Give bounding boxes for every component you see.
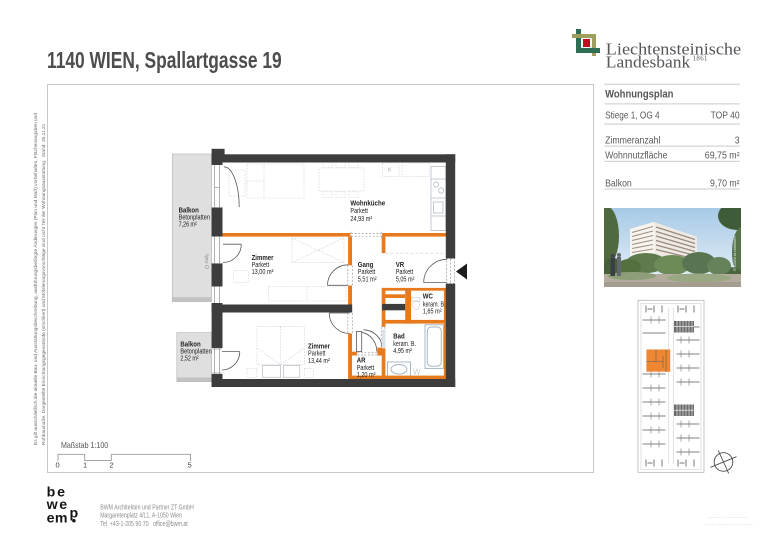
svg-text:© BWM Architekten: © BWM Architekten (732, 236, 737, 271)
svg-text:24,93 m²: 24,93 m² (350, 215, 372, 223)
svg-text:Margaretenplatz 4/L1, A-1050 W: Margaretenplatz 4/L1, A-1050 Wien (100, 512, 182, 520)
svg-text:9,70 m²: 9,70 m² (710, 178, 740, 189)
svg-text:Balkon: Balkon (605, 178, 632, 189)
svg-text:W: W (413, 368, 421, 377)
svg-text:69,75 m²: 69,75 m² (705, 150, 740, 160)
svg-text:5,05 m²: 5,05 m² (396, 276, 415, 284)
svg-text:3: 3 (735, 135, 740, 146)
svg-text:Zimmeranzahl: Zimmeranzahl (605, 135, 660, 146)
svg-text:TOP 40: TOP 40 (711, 110, 740, 121)
svg-text:p: p (70, 505, 79, 521)
svg-text:Wohnungsplan: Wohnungsplan (605, 89, 673, 101)
svg-text:2: 2 (110, 461, 114, 470)
svg-text:13,00 m²: 13,00 m² (252, 269, 274, 277)
svg-text:Landesbank: Landesbank (606, 53, 691, 72)
svg-text:BWM Architekten und Partner ZT: BWM Architekten und Partner ZT GmbH (100, 504, 194, 512)
svg-text:1140 WIEN, Spallartgasse 19: 1140 WIEN, Spallartgasse 19 (47, 49, 282, 74)
svg-text:WC: WC (423, 293, 433, 301)
svg-text:5: 5 (188, 461, 192, 470)
svg-text:Tel +43-1-205 90 70 office@: Tel +43-1-205 90 70 office@bwm.at (100, 520, 188, 528)
svg-text:1,20 m²: 1,20 m² (357, 371, 376, 379)
svg-text:K: K (388, 168, 392, 174)
svg-text:em: em (47, 510, 68, 526)
svg-text:4,95 m²: 4,95 m² (393, 347, 412, 355)
svg-text:Wohnküche: Wohnküche (350, 200, 385, 208)
svg-text:1: 1 (83, 461, 87, 470)
svg-text:Stiege 1, OG 4: Stiege 1, OG 4 (605, 110, 660, 121)
svg-text:2,52 m²: 2,52 m² (180, 355, 198, 363)
svg-text:Wohnnutzfläche: Wohnnutzfläche (605, 150, 667, 161)
svg-text:1,65 m²: 1,65 m² (423, 308, 442, 316)
svg-text:Gully: Gully (204, 253, 209, 264)
svg-text:0: 0 (56, 461, 60, 470)
svg-text:Maßstab 1:100: Maßstab 1:100 (61, 440, 109, 450)
svg-text:13,44 m²: 13,44 m² (308, 357, 330, 365)
svg-text:1861: 1861 (693, 56, 708, 63)
svg-text:7,26 m²: 7,26 m² (179, 221, 197, 229)
svg-text:5,51 m²: 5,51 m² (358, 276, 377, 284)
